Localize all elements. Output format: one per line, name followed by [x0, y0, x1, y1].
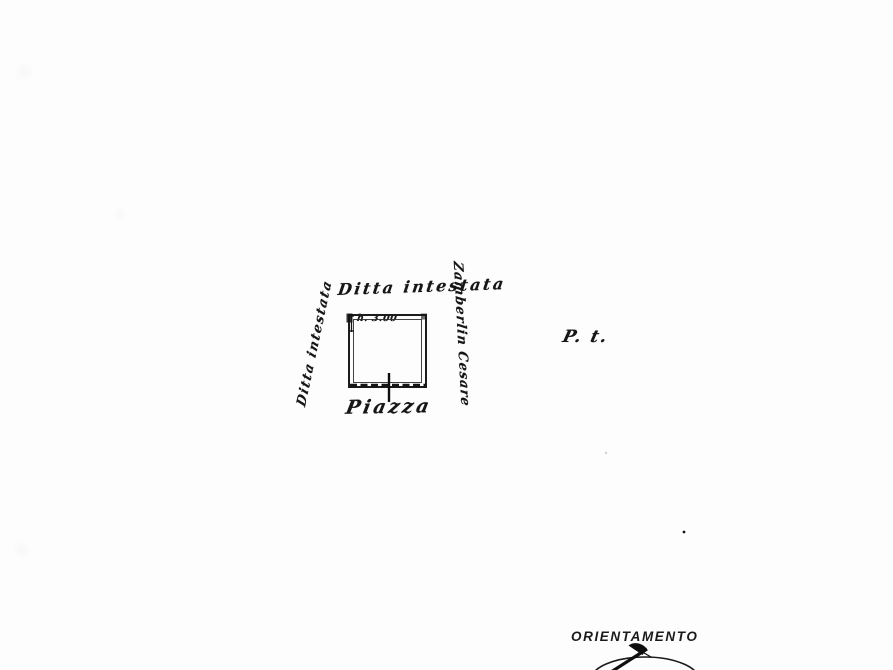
street-label-piazza: Piazza — [344, 395, 434, 419]
ink-speck — [683, 531, 686, 534]
neighbor-label-top: Ditta intestata — [337, 274, 508, 299]
height-dimension-mark — [349, 315, 354, 332]
neighbor-label-left: Ditta intestata — [294, 286, 333, 409]
floor-level-label: P. t. — [561, 327, 612, 347]
ink-speck-faint — [605, 452, 607, 454]
plan-linework — [0, 0, 893, 670]
north-arrow-icon — [590, 643, 700, 670]
scanned-plan-sheet: Ditta intestata Ditta intestata Zamberli… — [0, 0, 893, 670]
building-outline — [347, 314, 428, 388]
ceiling-height-note: h. 3.00 — [356, 313, 398, 324]
orientamento-label: ORIENTAMENTO — [571, 629, 698, 644]
